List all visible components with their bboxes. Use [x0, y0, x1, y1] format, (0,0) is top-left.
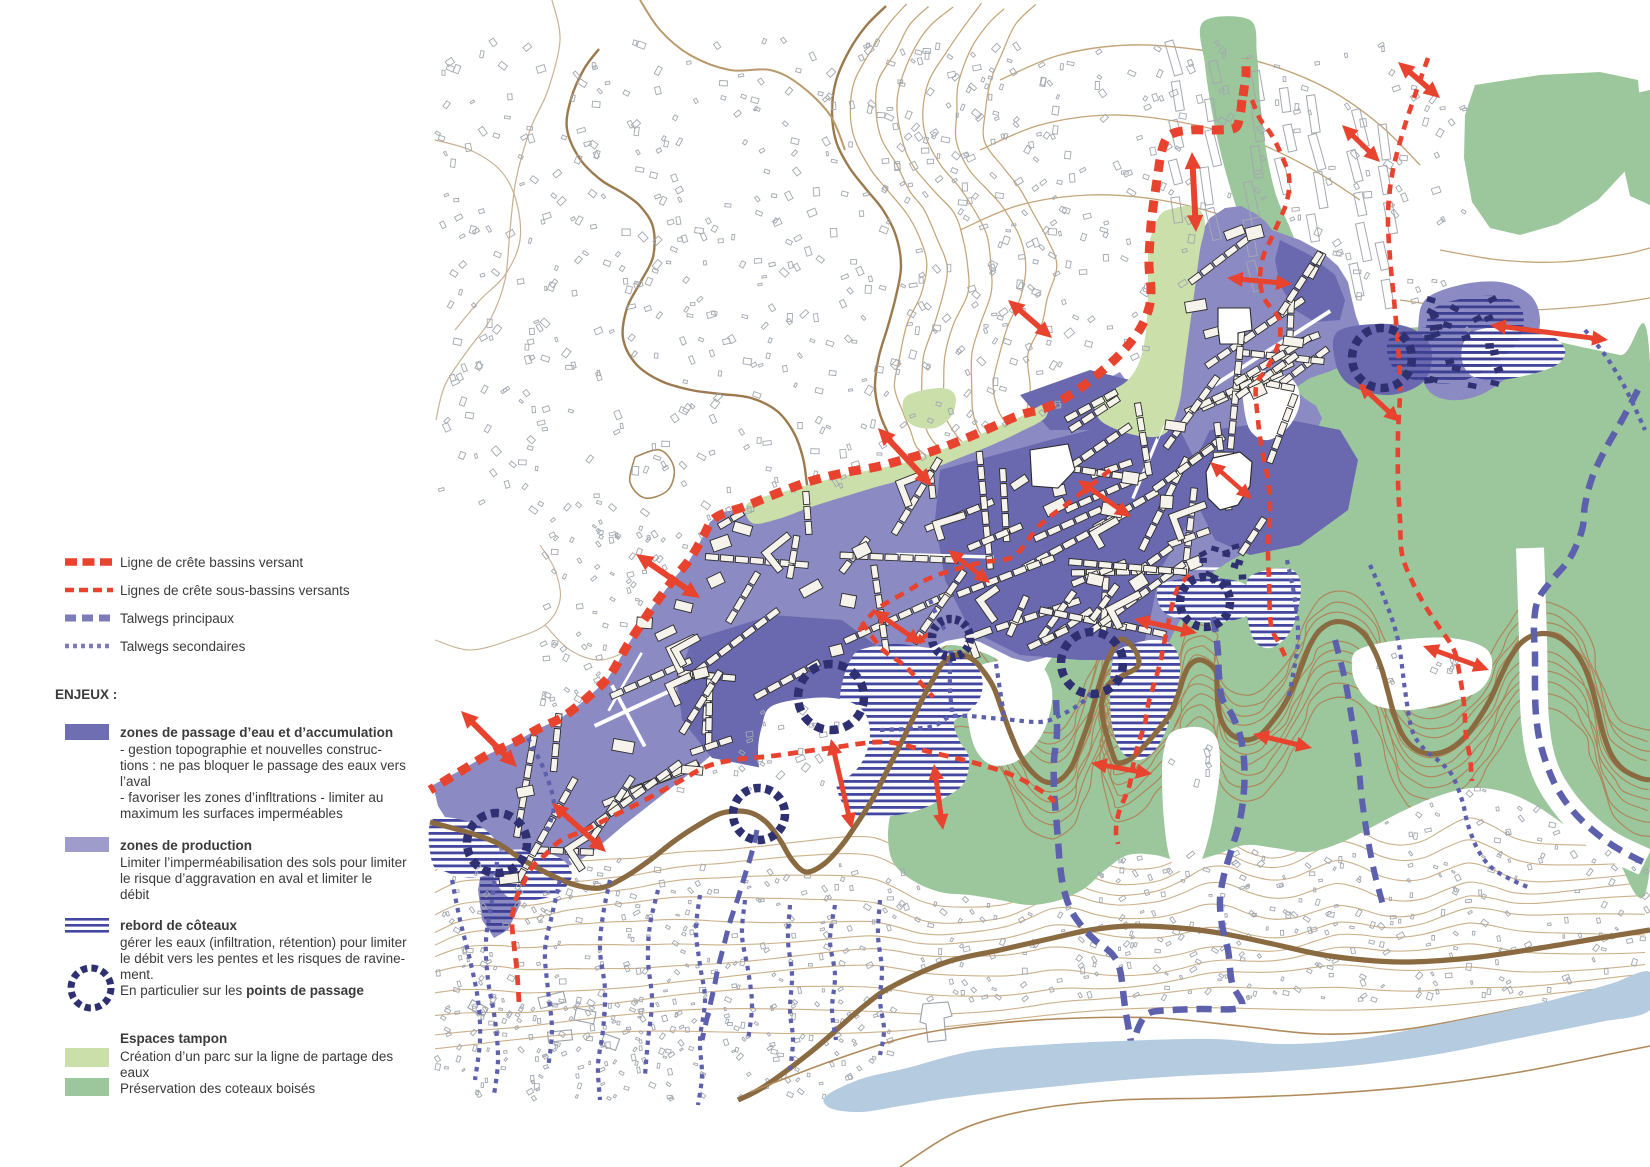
svg-text:En particulier sur les points: En particulier sur les points de passage: [120, 983, 364, 998]
svg-text:Lignes de crête sous-bassins v: Lignes de crête sous-bassins versants: [120, 583, 350, 598]
svg-text:gérer les eaux (infiltration,: gérer les eaux (infiltration, rétention)…: [120, 935, 407, 950]
svg-text:rebord de côteaux: rebord de côteaux: [120, 918, 238, 933]
svg-text:zones de production: zones de production: [120, 838, 252, 853]
svg-text:Préservation des coteaux boisé: Préservation des coteaux boisés: [120, 1081, 315, 1096]
svg-text:Ligne de crête bassins versant: Ligne de crête bassins versant: [120, 555, 303, 570]
svg-text:Limiter l’imperméabilisation d: Limiter l’imperméabilisation des sols po…: [120, 855, 407, 870]
svg-text:tions : ne pas bloquer le pass: tions : ne pas bloquer le passage des ea…: [120, 758, 406, 773]
svg-text:l’aval: l’aval: [120, 774, 151, 789]
svg-text:Espaces tampon: Espaces tampon: [120, 1031, 227, 1046]
svg-text:le risque d’aggravation en ava: le risque d’aggravation en aval et limit…: [120, 871, 372, 886]
svg-text:Talwegs secondaires: Talwegs secondaires: [120, 639, 246, 654]
svg-text:ENJEUX :: ENJEUX :: [55, 687, 117, 702]
svg-text:zones de passage d’eau et d’ac: zones de passage d’eau et d’accumulation: [120, 725, 393, 740]
svg-text:Talwegs principaux: Talwegs principaux: [120, 611, 234, 626]
svg-text:eaux: eaux: [120, 1065, 150, 1080]
svg-text:Création d’un parc sur la lign: Création d’un parc sur la ligne de parta…: [120, 1049, 393, 1064]
svg-text:- favoriser les zones d’infltr: - favoriser les zones d’infltrations - l…: [120, 790, 383, 805]
svg-text:le débit vers les pentes et le: le débit vers les pentes et les risques …: [120, 951, 405, 966]
svg-text:ment.: ment.: [120, 967, 154, 982]
svg-text:- gestion topographie et nouve: - gestion topographie et nouvelles const…: [120, 742, 382, 757]
svg-text:maximum les surfaces imperméab: maximum les surfaces imperméables: [120, 806, 343, 821]
svg-text:débit: débit: [120, 887, 150, 902]
